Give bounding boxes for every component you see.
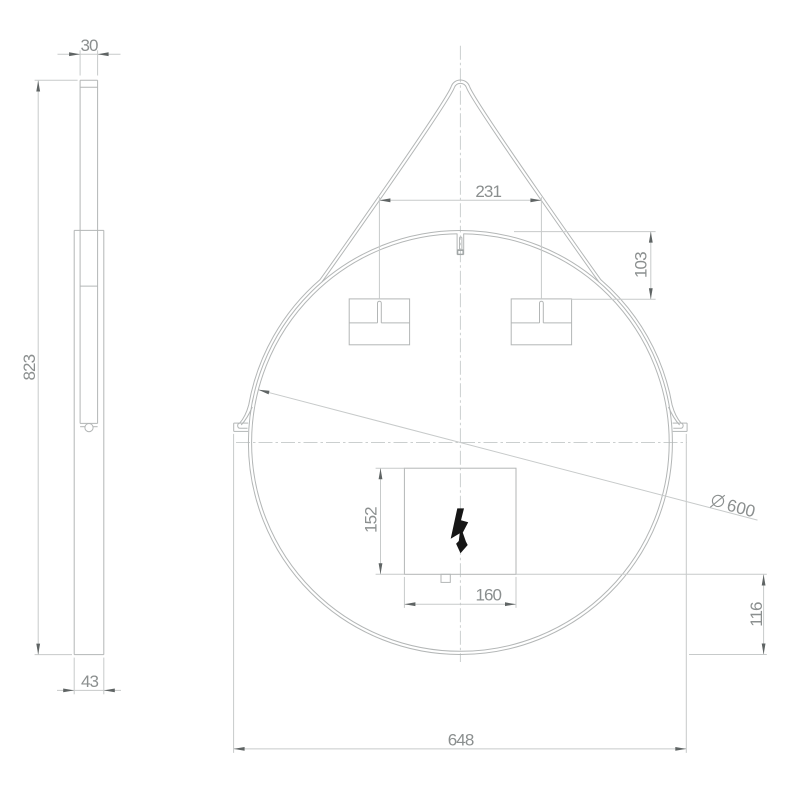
svg-text:116: 116 [747,602,766,627]
svg-text:160: 160 [475,586,501,605]
svg-text:648: 648 [448,731,474,750]
svg-text:43: 43 [81,672,99,691]
svg-text:231: 231 [475,182,501,201]
svg-text:103: 103 [632,252,651,278]
svg-text:600: 600 [725,496,757,522]
svg-text:30: 30 [80,36,98,55]
svg-text:823: 823 [20,354,39,380]
svg-text:152: 152 [362,507,381,533]
